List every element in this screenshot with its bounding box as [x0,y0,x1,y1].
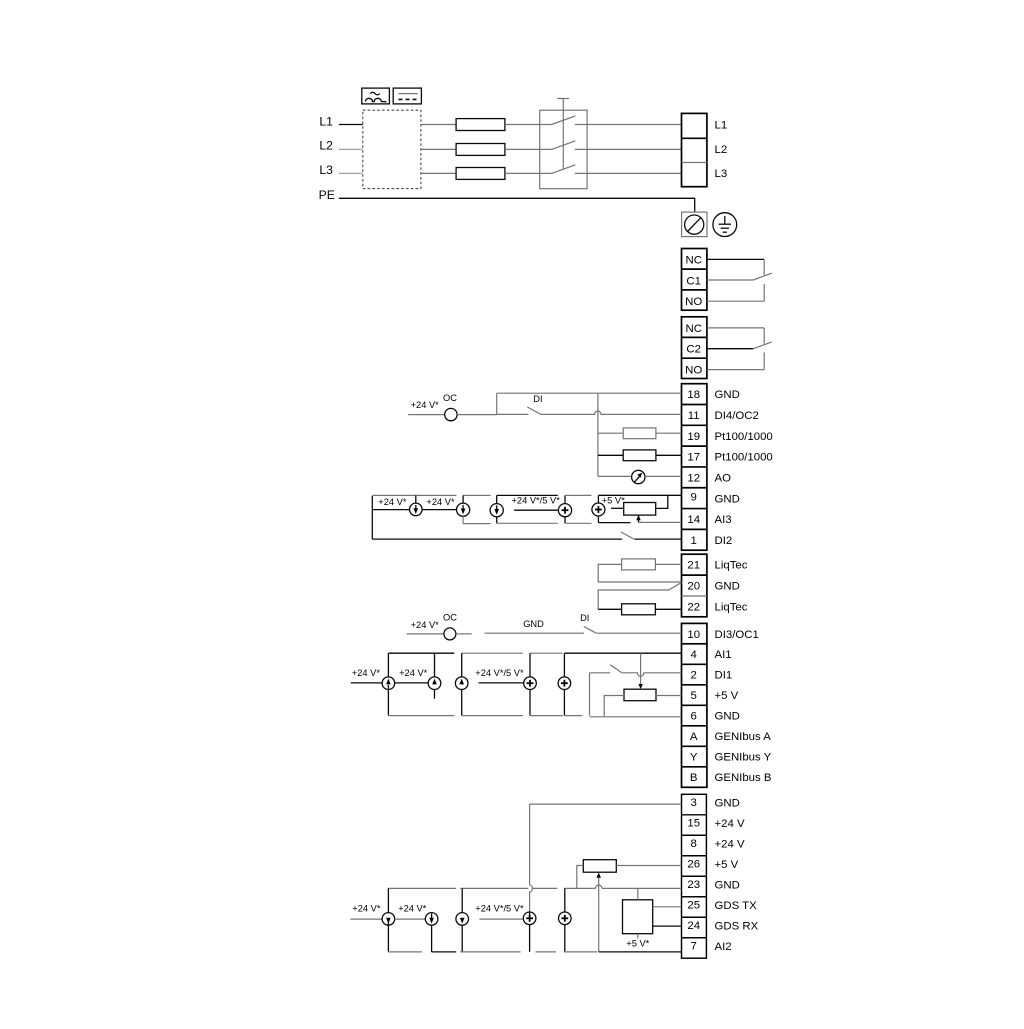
svg-text:NO: NO [685,365,702,377]
svg-text:8: 8 [691,838,697,850]
svg-text:Pt100/1000: Pt100/1000 [715,452,773,464]
svg-text:+24 V*: +24 V* [426,497,455,507]
svg-text:14: 14 [687,514,700,526]
svg-text:L2: L2 [715,144,728,156]
svg-text:+24 V*: +24 V* [352,903,381,913]
svg-text:+5 V: +5 V [715,690,739,702]
svg-text:5: 5 [691,690,697,702]
svg-text:OC: OC [443,613,457,623]
svg-text:4: 4 [691,649,697,661]
svg-text:25: 25 [687,900,700,912]
svg-text:12: 12 [687,472,700,484]
svg-text:1: 1 [691,535,697,547]
svg-text:9: 9 [691,491,697,503]
svg-text:GND: GND [523,619,544,629]
svg-text:AO: AO [715,472,732,484]
svg-text:OC: OC [443,393,457,403]
svg-text:L1: L1 [319,114,333,128]
svg-text:22: 22 [687,602,700,614]
svg-text:7: 7 [691,941,697,953]
svg-text:B: B [690,772,698,784]
svg-text:+24 V*/5 V*: +24 V*/5 V* [512,496,561,506]
svg-text:GND: GND [715,389,740,401]
svg-text:23: 23 [687,879,700,891]
svg-text:PE: PE [319,188,335,202]
svg-text:+24 V: +24 V [715,818,745,830]
svg-text:DI4/OC2: DI4/OC2 [715,410,759,422]
svg-text:GENIbus B: GENIbus B [715,772,772,784]
svg-text:L3: L3 [715,168,728,180]
svg-text:+5 V: +5 V [715,859,739,871]
svg-text:DI: DI [580,613,589,623]
svg-text:19: 19 [687,431,700,443]
svg-text:GND: GND [715,711,740,723]
svg-text:GND: GND [715,493,740,505]
svg-text:LiqTec: LiqTec [715,602,748,614]
svg-text:C2: C2 [686,344,701,356]
svg-text:GND: GND [715,581,740,593]
svg-text:6: 6 [691,711,697,723]
svg-text:11: 11 [688,410,700,422]
svg-text:3: 3 [691,797,697,809]
svg-text:20: 20 [687,581,700,593]
svg-text:2: 2 [691,670,697,682]
svg-text:L1: L1 [715,119,728,131]
svg-text:GND: GND [715,797,740,809]
svg-text:+24 V*: +24 V* [398,903,427,913]
svg-text:+24 V*: +24 V* [411,620,440,630]
svg-text:+24 V*: +24 V* [399,668,428,678]
svg-text:Pt100/1000: Pt100/1000 [715,431,773,443]
svg-text:A: A [690,731,698,743]
svg-text:NC: NC [685,323,701,335]
svg-text:AI1: AI1 [715,649,732,661]
svg-text:24: 24 [687,920,700,932]
svg-text:C1: C1 [686,275,701,287]
svg-text:+24 V*/5 V*: +24 V*/5 V* [475,668,524,678]
svg-text:+24 V: +24 V [715,838,745,850]
svg-text:15: 15 [687,818,700,830]
svg-text:Y: Y [690,752,698,764]
svg-text:+5 V*: +5 V* [602,496,625,506]
svg-text:NC: NC [685,255,701,267]
svg-text:+5 V*: +5 V* [626,938,649,948]
svg-text:AI2: AI2 [715,941,732,953]
svg-text:L3: L3 [319,163,333,177]
svg-text:17: 17 [687,452,700,464]
svg-text:+24 V*/5 V*: +24 V*/5 V* [475,903,524,913]
svg-text:10: 10 [687,629,700,641]
svg-text:DI1: DI1 [715,670,733,682]
svg-text:L2: L2 [319,139,333,153]
svg-text:DI2: DI2 [715,535,733,547]
svg-text:GENIbus Y: GENIbus Y [715,752,772,764]
svg-text:GND: GND [715,879,740,891]
svg-text:18: 18 [687,389,700,401]
svg-text:LiqTec: LiqTec [715,560,748,572]
svg-text:DI3/OC1: DI3/OC1 [715,629,759,641]
svg-text:NO: NO [685,296,702,308]
svg-text:21: 21 [687,560,700,572]
svg-text:+24 V*: +24 V* [352,668,381,678]
svg-text:26: 26 [687,859,700,871]
svg-text:GDS TX: GDS TX [715,900,758,912]
svg-text:GDS RX: GDS RX [715,920,759,932]
svg-text:+24 V*: +24 V* [378,497,407,507]
svg-text:GENIbus A: GENIbus A [715,731,772,743]
svg-text:AI3: AI3 [715,514,732,526]
svg-text:+24 V*: +24 V* [411,400,440,410]
svg-text:DI: DI [533,394,542,404]
